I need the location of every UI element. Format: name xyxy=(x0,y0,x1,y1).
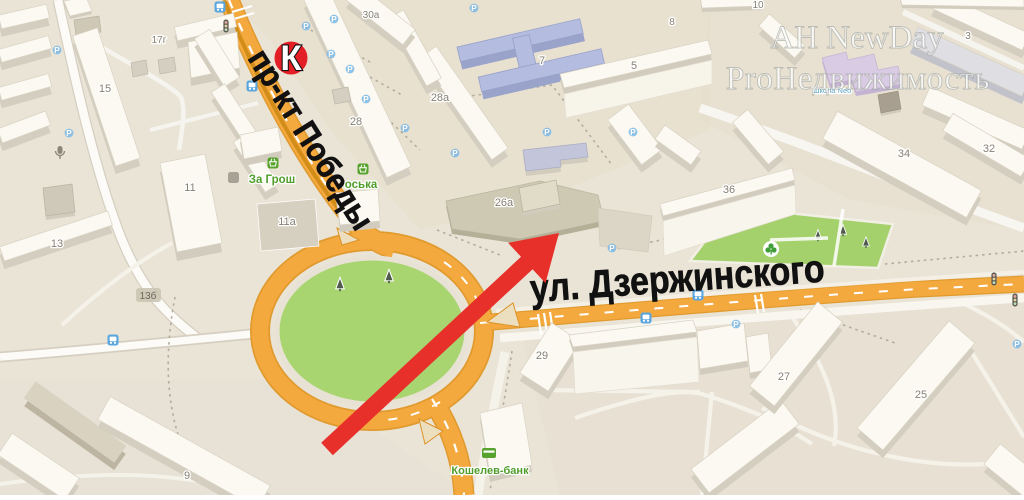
svg-text:P: P xyxy=(471,4,477,13)
svg-text:15: 15 xyxy=(99,83,111,95)
svg-text:P: P xyxy=(363,95,369,104)
svg-text:25: 25 xyxy=(915,389,927,401)
svg-text:P: P xyxy=(331,15,337,24)
svg-text:29: 29 xyxy=(536,350,548,362)
svg-text:P: P xyxy=(303,22,309,31)
svg-text:32: 32 xyxy=(983,143,995,155)
svg-text:P: P xyxy=(609,244,615,253)
svg-text:36: 36 xyxy=(723,184,735,196)
svg-text:34: 34 xyxy=(898,148,910,160)
svg-text:9: 9 xyxy=(184,470,190,482)
svg-text:P: P xyxy=(1014,340,1020,349)
svg-text:P: P xyxy=(328,50,334,59)
svg-text:P: P xyxy=(402,124,408,133)
svg-text:8: 8 xyxy=(669,17,675,28)
svg-text:3: 3 xyxy=(965,31,971,42)
svg-text:28а: 28а xyxy=(431,92,450,104)
svg-text:10: 10 xyxy=(752,0,764,11)
svg-text:30а: 30а xyxy=(363,10,380,21)
svg-text:11: 11 xyxy=(184,182,195,194)
svg-text:За Грош: За Грош xyxy=(249,174,296,186)
svg-text:P: P xyxy=(733,320,739,329)
svg-text:7: 7 xyxy=(539,55,545,67)
svg-text:Кошелев-банк: Кошелев-банк xyxy=(451,465,529,477)
svg-text:13: 13 xyxy=(51,238,63,250)
svg-text:P: P xyxy=(347,65,353,74)
svg-text:P: P xyxy=(66,129,72,138)
svg-text:АН NewDay: АН NewDay xyxy=(770,20,944,56)
svg-text:28: 28 xyxy=(350,116,362,128)
svg-text:P: P xyxy=(544,128,550,137)
svg-text:13б: 13б xyxy=(140,290,157,302)
svg-text:P: P xyxy=(630,128,636,137)
svg-text:5: 5 xyxy=(631,60,637,72)
svg-text:ProНедвижимость: ProНедвижимость xyxy=(726,61,990,97)
svg-text:26а: 26а xyxy=(495,197,514,209)
svg-text:27: 27 xyxy=(778,371,790,383)
svg-text:11а: 11а xyxy=(278,216,296,228)
svg-text:P: P xyxy=(54,46,60,55)
svg-text:17г: 17г xyxy=(152,35,167,46)
svg-text:P: P xyxy=(452,149,458,158)
